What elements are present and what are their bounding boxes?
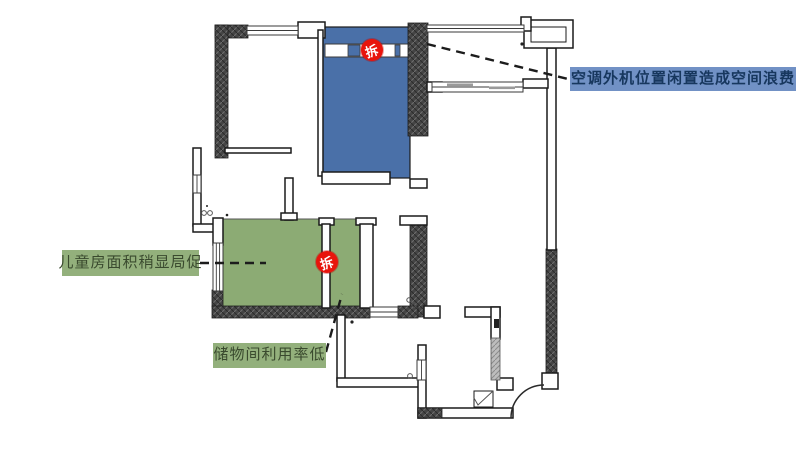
entry-door-arc	[511, 385, 544, 418]
window-kids-left	[213, 243, 223, 291]
opening-hall-bottom	[370, 307, 398, 317]
window-balcony-sliding	[432, 82, 523, 92]
annotation-storage: 储物间利用率低	[213, 343, 326, 368]
bath-partition-wall	[491, 338, 500, 380]
demolish-badge-storage: 拆	[316, 251, 338, 273]
demolish-badge-label: 拆	[318, 251, 336, 273]
stove-symbol	[202, 211, 207, 216]
window-kitchen-left	[193, 175, 201, 193]
window-top-left	[247, 26, 298, 35]
annotation-kids-room: 儿童房面积稍显局促	[62, 250, 199, 276]
bath-door-hinge	[494, 319, 499, 328]
annotation-ac-waste: 空调外机位置闲置造成空间浪费	[570, 67, 796, 91]
stove-symbol	[208, 211, 213, 216]
window-bath-left	[417, 360, 426, 380]
demolish-badge-bedroom: 拆	[361, 39, 383, 61]
floorplan-canvas: 拆 拆 空调外机位置闲置造成空间浪费 儿童房面积稍显局促 储物间利用率低	[0, 0, 800, 450]
ac-platform	[521, 17, 573, 48]
window-balcony-top	[427, 25, 524, 32]
demolish-badge-label: 拆	[363, 39, 381, 61]
shower-tray	[474, 391, 493, 407]
